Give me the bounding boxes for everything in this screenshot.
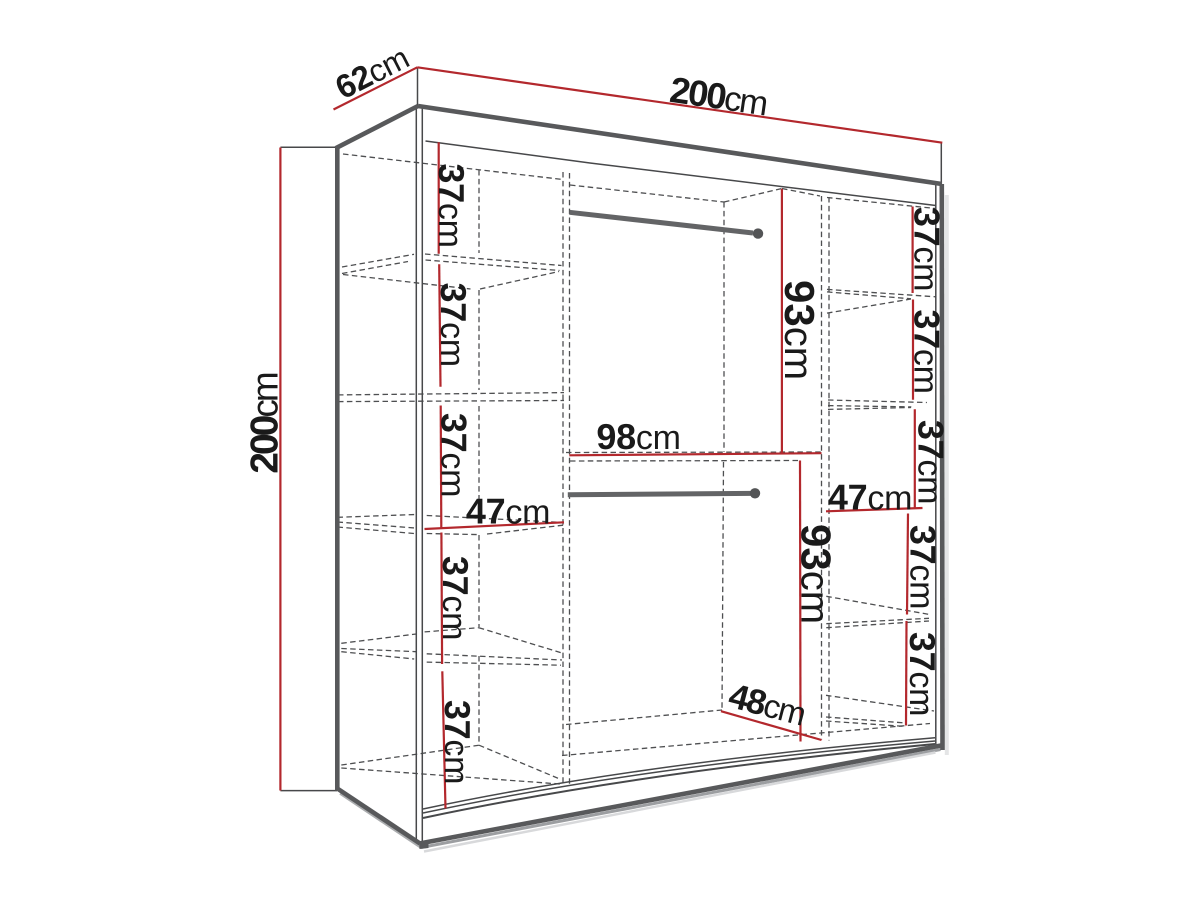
svg-text:37cm: 37cm (435, 556, 476, 640)
svg-text:37cm: 37cm (907, 309, 948, 393)
svg-text:37cm: 37cm (437, 700, 478, 784)
svg-text:37cm: 37cm (903, 525, 944, 609)
svg-text:93cm: 93cm (776, 280, 823, 380)
svg-text:93cm: 93cm (793, 524, 840, 624)
svg-text:37cm: 37cm (902, 632, 943, 716)
svg-text:200cm: 200cm (244, 373, 287, 474)
svg-text:37cm: 37cm (434, 413, 475, 497)
svg-text:37cm: 37cm (907, 207, 948, 291)
svg-text:37cm: 37cm (431, 163, 472, 247)
svg-text:47cm: 47cm (466, 491, 550, 532)
svg-text:37cm: 37cm (433, 283, 474, 367)
svg-text:98cm: 98cm (596, 416, 680, 457)
svg-text:47cm: 47cm (828, 477, 912, 518)
svg-text:37cm: 37cm (911, 420, 952, 504)
